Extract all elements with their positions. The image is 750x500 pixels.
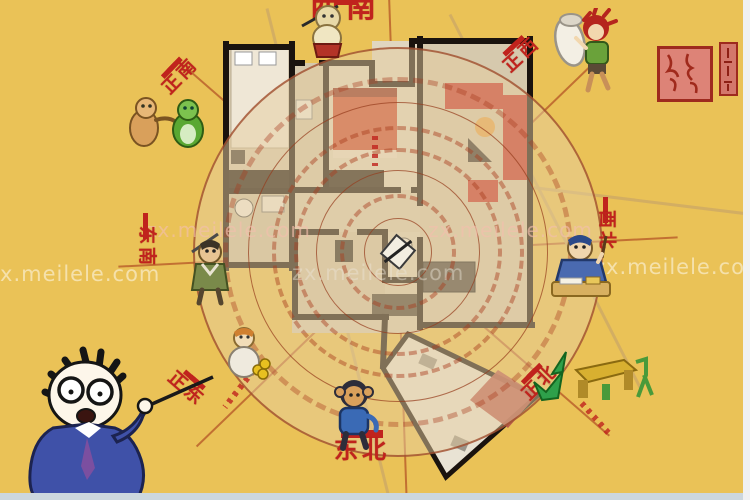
seal-characters (660, 49, 710, 99)
bottom-edge-strip (0, 493, 750, 500)
watermark: zx.meilele.com (292, 261, 464, 285)
monkey-pair-icon (122, 90, 214, 156)
fengshui-illustration: zx.meilele.com zx.meilele.com zx.meilele… (0, 0, 750, 500)
baby-with-sword-icon (294, 0, 358, 60)
warrior-icon (178, 232, 238, 306)
right-edge-strip (743, 0, 750, 500)
compass-degree-marks (372, 136, 378, 166)
seal-characters (721, 44, 736, 94)
scholar-writing-icon (540, 228, 624, 306)
seal-stamp-large-icon (657, 46, 713, 102)
seal-stamp-small-icon (719, 42, 738, 96)
direction-text: 东南 (135, 226, 161, 268)
professor-pointing-icon (5, 340, 225, 500)
blue-monkey-icon (324, 376, 382, 452)
boy-with-sack-icon (550, 8, 624, 100)
desk-and-chairs-icon (532, 348, 658, 406)
wealth-figure-icon (218, 324, 272, 382)
green-arrow-icon (534, 352, 566, 400)
